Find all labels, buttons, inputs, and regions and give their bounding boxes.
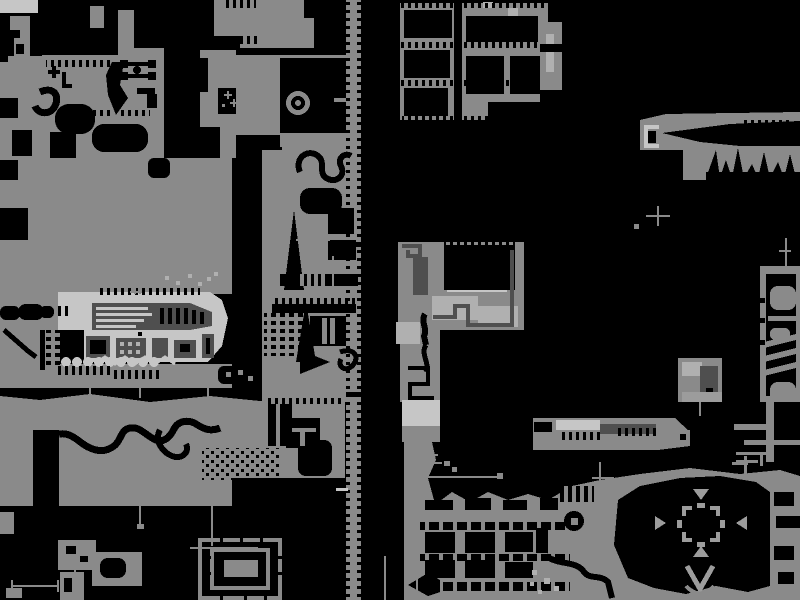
map-terrain (0, 0, 800, 600)
game-map-screen (0, 0, 800, 600)
map-canvas (0, 0, 800, 600)
